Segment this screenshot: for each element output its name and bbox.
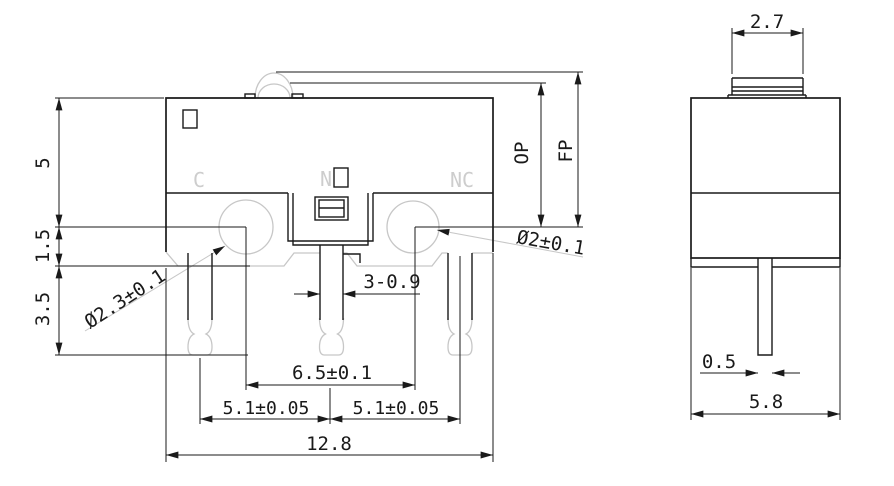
terminal-pin-edges xyxy=(188,245,472,320)
front-auxiliary-outline xyxy=(85,73,583,355)
front-body-outline xyxy=(166,94,493,320)
base-bottom-contour xyxy=(166,252,493,266)
terminal-label-nc: NC xyxy=(450,168,474,192)
dim-label-pitch-left: 5.1±0.05 xyxy=(223,398,310,419)
side-bottom-plate xyxy=(691,258,840,267)
side-housing xyxy=(691,98,840,258)
terminal-tip-left xyxy=(188,318,212,355)
drawing-canvas: C N NC 5 1.5 xyxy=(0,0,894,486)
plunger-dome-inner-arc xyxy=(258,84,290,98)
dim-label-op: OP xyxy=(511,142,533,165)
ext-lines-op-fp xyxy=(276,72,583,227)
side-body-outline xyxy=(691,78,840,355)
terminal-tip-center xyxy=(320,318,344,355)
dim-label-height-body: 5 xyxy=(32,157,54,168)
front-view: C N NC 5 1.5 xyxy=(32,72,587,462)
dim-label-fp: FP xyxy=(555,140,577,163)
n-terminal-mark xyxy=(334,168,348,187)
dim-label-hole-spacing: 6.5±0.1 xyxy=(292,362,372,384)
dim-label-height-terminal: 3.5 xyxy=(32,292,54,326)
side-plunger xyxy=(728,78,806,98)
dim-label-terminal-width: 3-0.9 xyxy=(363,271,420,293)
plunger-dome-outer-arc xyxy=(255,73,293,98)
mounting-hole xyxy=(183,110,197,128)
dim-label-body-width: 12.8 xyxy=(306,433,352,455)
ext-lines-centers xyxy=(166,227,493,462)
terminal-label-n: N xyxy=(320,167,332,191)
side-terminal-pin xyxy=(758,258,772,355)
technical-drawing: C N NC 5 1.5 xyxy=(0,0,894,486)
plunger-tab-right xyxy=(292,94,303,98)
front-dimensions xyxy=(55,72,583,462)
dim-label-height-base: 1.5 xyxy=(32,229,54,263)
dim-label-button-width: 2.7 xyxy=(750,11,784,33)
base-notch-inner xyxy=(293,193,368,245)
dim-label-pin-thickness: 0.5 xyxy=(702,351,736,373)
side-view: 2.7 0.5 5.8 xyxy=(691,11,840,420)
dim-label-hole-left-dia: Ø2.3±0.1 xyxy=(81,265,170,333)
dim-label-hole-right-dia: Ø2±0.1 xyxy=(515,226,586,260)
dim-label-body-depth: 5.8 xyxy=(749,391,783,413)
terminal-label-c: C xyxy=(193,168,205,192)
dim-label-pitch-right: 5.1±0.05 xyxy=(353,398,440,419)
ext-lines-button xyxy=(732,28,803,74)
plunger-tab-left xyxy=(245,94,255,98)
